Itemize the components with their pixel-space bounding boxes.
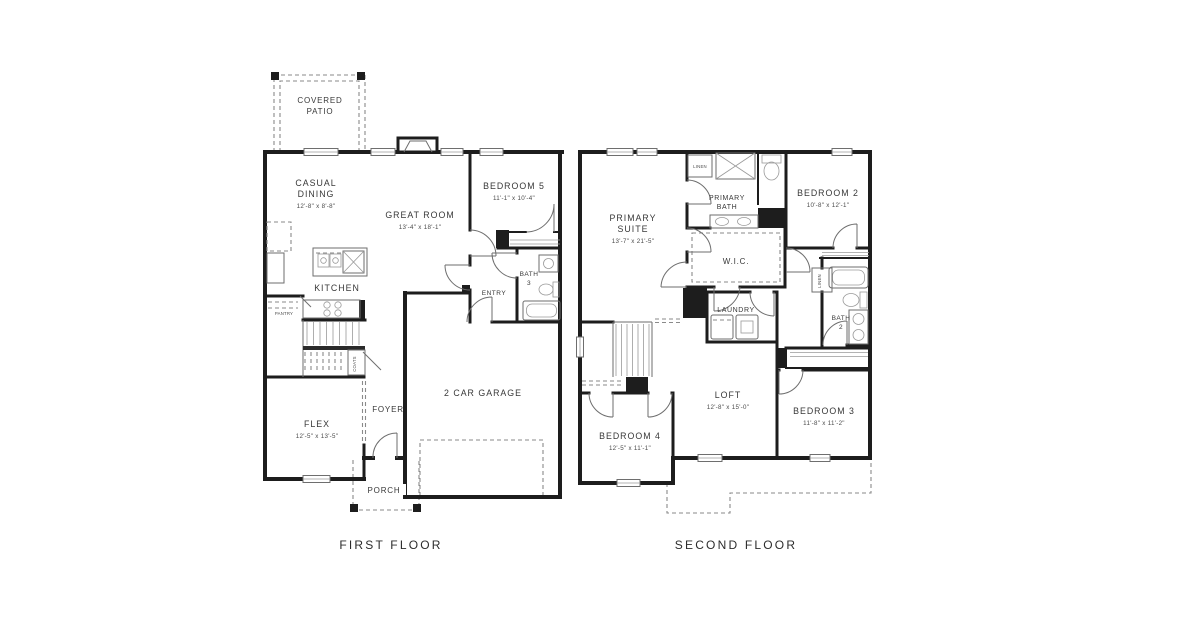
bedroom3-dims: 11'-8" x 11'-2" [803,420,845,427]
bedroom3-label: BEDROOM 3 [793,406,855,416]
casual-dining-label: CASUAL [295,178,336,188]
bedroom5-closet-shelf [510,240,560,244]
bedroom3-closet-shelf [790,353,868,357]
sink [318,254,329,267]
stair-railing [655,319,683,323]
window [637,149,657,156]
stairs-second [613,322,652,377]
covered-patio-label: COVERED [297,96,342,105]
bedroom2-label: BEDROOM 2 [797,188,859,198]
linen-hall-label: LINEN [817,274,822,288]
bedroom5-door [470,230,496,256]
sink [330,254,341,267]
sink [738,218,751,226]
kitchen-label: KITCHEN [314,283,360,293]
sink [853,314,864,325]
window [810,455,830,462]
bath3-label: BATH [520,271,539,278]
patio-slider-window [304,149,338,156]
bedroom4-closet-door [648,393,672,417]
bath3-label2: 3 [527,280,531,287]
bedroom4-door [589,393,613,417]
burner [324,302,330,308]
patio-post [357,72,365,80]
toilet [843,294,859,307]
suite-wic-door [687,228,711,252]
footprint-outline [667,459,871,513]
toilet-tank [860,292,867,308]
bedroom2-closet-shelf [822,253,869,256]
pantry-shelves [268,302,298,308]
burner [335,302,341,308]
primary-suite-label: PRIMARY [610,213,657,223]
garage-door-outline [420,440,543,496]
labels-first: COVERED PATIO CASUAL DINING 12'-8" x 8'-… [275,96,545,552]
porch-post [413,504,421,512]
entry-label: ENTRY [482,290,507,297]
bedroom3-door [779,370,803,394]
bath2-label2: 2 [839,324,843,331]
window [371,149,395,156]
bath2-door [823,321,847,345]
window [577,337,584,357]
primary-suite-door [661,262,687,287]
window [698,455,722,462]
bedroom2-door [786,248,810,272]
sink [716,218,729,226]
casual-dining-dims: 12'-8" x 8'-8" [297,203,336,210]
foyer-label: FOYER [372,405,404,414]
flex-dims: 12'-5" x 13'-5" [296,433,339,440]
second-floor-plan: PRIMARY SUITE 13'-7" x 21'-5" LINEN PRIM… [577,149,872,553]
great-room-label: GREAT ROOM [385,210,454,220]
bedroom5-closet-door [526,204,554,232]
bedroom4-dims: 12'-5" x 11'-1" [609,445,651,452]
garage-label: 2 CAR GARAGE [444,388,522,398]
toilet [764,162,779,180]
window [617,480,640,487]
primary-bath-label2: BATH [717,204,738,211]
toilet [539,284,553,295]
laundry-label: LAUNDRY [717,307,755,314]
window [480,149,503,156]
window [303,476,330,483]
dryer [736,315,758,339]
laundry-fixtures [711,315,758,339]
primary-suite-dims: 13'-7" x 21'-5" [612,238,655,245]
coats-door [363,352,381,370]
bedroom2-closet-door [833,224,857,248]
loft-dims: 12'-8" x 15'-0" [707,404,750,411]
bath3-door [492,253,517,278]
second-floor-caption: SECOND FLOOR [675,538,797,552]
porch-post [350,504,358,512]
floorplan-svg: COVERED PATIO CASUAL DINING 12'-8" x 8'-… [0,0,1201,635]
pantry-door [300,296,311,307]
casual-dining-label2: DINING [298,189,335,199]
floorplan-sheet: COVERED PATIO CASUAL DINING 12'-8" x 8'-… [0,0,1201,635]
bedroom5-dims: 11'-1" x 10'-4" [493,195,535,202]
primary-bath-label: PRIMARY [709,195,745,202]
kitchen-fixtures [267,222,367,318]
burner [335,310,341,316]
wic-label: W.I.C. [723,257,750,266]
flex-label: FLEX [304,419,330,429]
coats-label: COATS [352,356,357,371]
primary-bath-door [687,180,711,204]
window [832,149,852,156]
front-door [373,433,397,458]
doors-first [300,204,554,458]
cabinet [267,253,284,283]
bath2-label: BATH [832,315,851,322]
window [441,149,463,156]
bedroom2-dims: 10'-8" x 12'-1" [807,202,850,209]
bedroom4-closet-shelf [582,381,624,385]
sink [539,255,558,272]
bay-window [398,138,437,152]
patio-post [271,72,279,80]
porch-label: PORCH [368,486,401,495]
first-floor-caption: FIRST FLOOR [339,538,442,552]
pantry-label: PANTRY [275,311,293,316]
bath3-fixtures [523,255,560,320]
loft-label: LOFT [715,390,741,400]
bedroom4-label: BEDROOM 4 [599,431,661,441]
linen-label: LINEN [693,164,707,169]
bedroom5-label: BEDROOM 5 [483,181,545,191]
sink [853,330,864,341]
primary-suite-label2: SUITE [618,224,649,234]
optional-cabinet [267,222,291,251]
great-room-dims: 13'-4" x 18'-1" [399,224,442,231]
range-counter [303,300,360,318]
first-floor-plan: COVERED PATIO CASUAL DINING 12'-8" x 8'-… [265,72,562,552]
sink-counter [849,310,868,344]
washer [711,315,733,339]
window [607,149,633,156]
covered-patio-label2: PATIO [307,107,334,116]
burner [324,310,330,316]
